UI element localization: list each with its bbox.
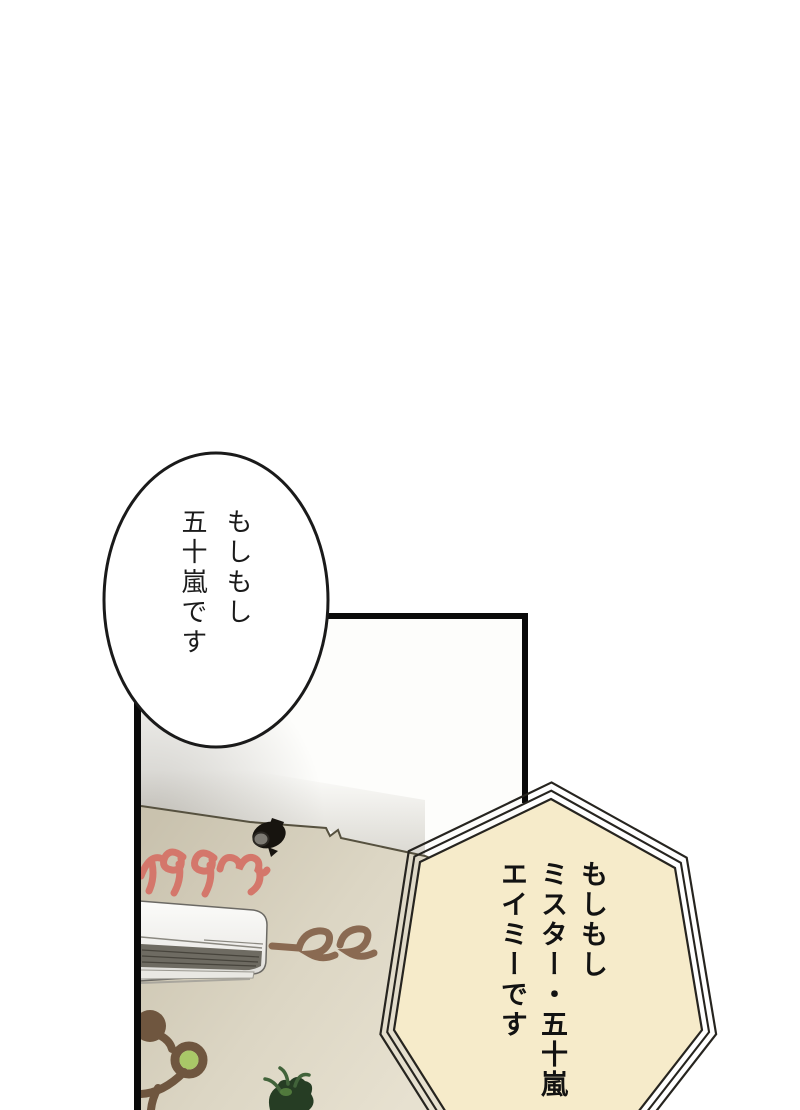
speech-line: もしもし <box>215 508 260 698</box>
happy-stroke <box>149 863 153 891</box>
decal-berry <box>180 1051 199 1070</box>
spotlight-lens <box>254 833 269 846</box>
speech-line: 五十嵐です <box>170 508 215 698</box>
heptagon-bubble-text: もしもし ミスター・五十嵐 エイミーです <box>492 860 612 1110</box>
manga-page: もしもし 五十嵐です もしもし ミスター・五十嵐 エイミーです <box>0 0 800 1110</box>
scene-graphics <box>0 0 800 1110</box>
speech-line: エイミーです <box>492 860 532 1110</box>
speech-line: もしもし <box>572 860 612 1110</box>
ellipse-bubble-text: もしもし 五十嵐です <box>168 508 260 698</box>
speech-line: ミスター・五十嵐 <box>532 860 572 1110</box>
plant-highlight <box>280 1088 292 1096</box>
ac-bottom-lip <box>140 970 254 979</box>
panel-border-right <box>522 613 528 803</box>
air-conditioner <box>139 901 267 983</box>
